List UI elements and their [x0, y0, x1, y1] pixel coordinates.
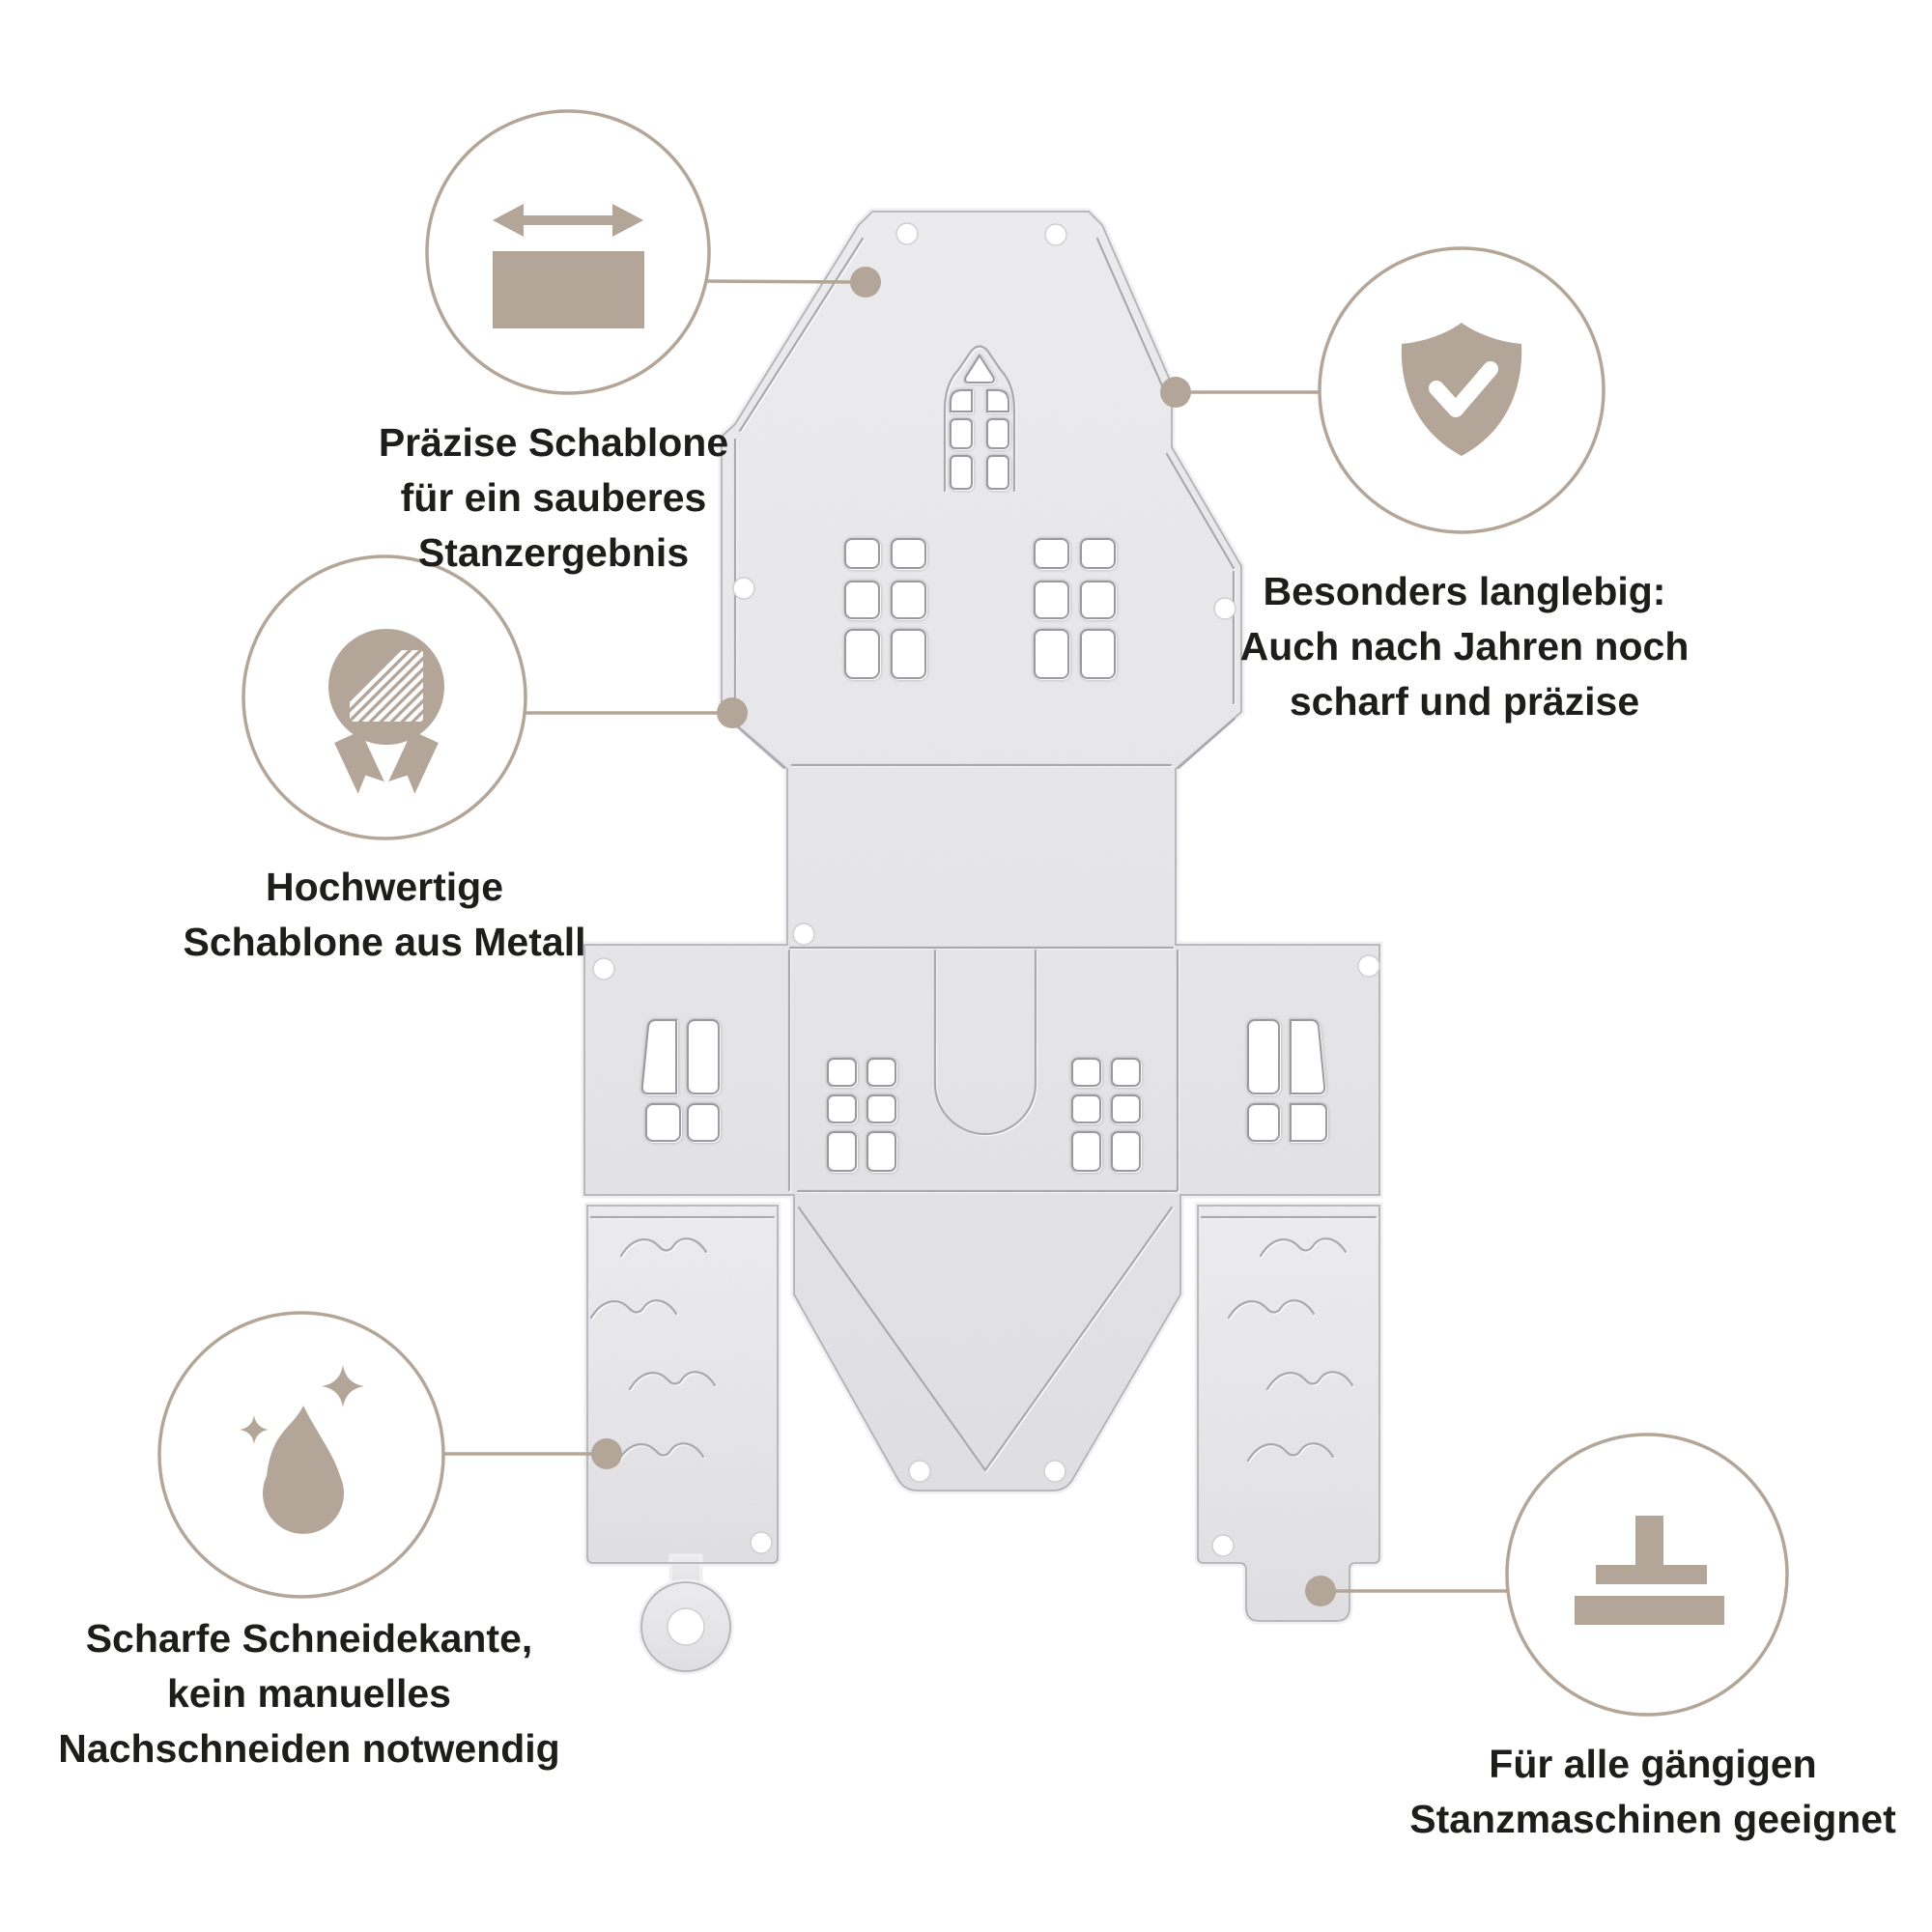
leader-dot [850, 267, 881, 298]
machine-tab-strip [1198, 1206, 1379, 1621]
label-line: für ein sauberes [379, 470, 728, 526]
label-compatibility: Für alle gängigen Stanzmaschinen geeigne… [1409, 1737, 1896, 1847]
label-line: scharf und präzise [1240, 674, 1690, 729]
leader-dot [1305, 1576, 1336, 1606]
label-line: Scharfe Schneidekante, [58, 1611, 559, 1666]
medal-icon [287, 629, 528, 794]
label-line: Präzise Schablone [379, 415, 728, 470]
label-line: Stanzmaschinen geeignet [1409, 1792, 1896, 1847]
width-arrows-icon [493, 204, 644, 328]
shield-check-icon [1402, 323, 1521, 456]
leader-dot [717, 697, 748, 728]
label-line: Schablone aus Metall [184, 915, 586, 970]
label-sharp-edge: Scharfe Schneidekante, kein manuelles Na… [58, 1611, 559, 1776]
label-line: Stanzergebnis [379, 526, 728, 581]
infographic-canvas: Präzise Schablone für ein sauberes Stanz… [0, 0, 1932, 1932]
label-line: kein manuelles [58, 1666, 559, 1721]
label-line: Besonders langlebig: [1240, 564, 1690, 619]
label-precision: Präzise Schablone für ein sauberes Stanz… [379, 415, 728, 581]
droplet-sparkle-icon [240, 1365, 364, 1534]
die-press-icon [1575, 1516, 1724, 1625]
callout-quality [243, 556, 748, 838]
callout-sharp-edge [159, 1313, 622, 1597]
callout-durability [1160, 248, 1604, 532]
leader-dot [591, 1438, 622, 1469]
label-line: Hochwertige [184, 860, 586, 915]
label-line: Nachschneiden notwendig [58, 1721, 559, 1776]
leader-dot [1160, 377, 1191, 408]
ring-tag-hole [668, 1608, 704, 1645]
label-durability: Besonders langlebig: Auch nach Jahren no… [1240, 564, 1690, 729]
label-quality: Hochwertige Schablone aus Metall [184, 860, 586, 970]
label-line: Auch nach Jahren noch [1240, 619, 1690, 674]
label-line: Für alle gängigen [1409, 1737, 1896, 1792]
